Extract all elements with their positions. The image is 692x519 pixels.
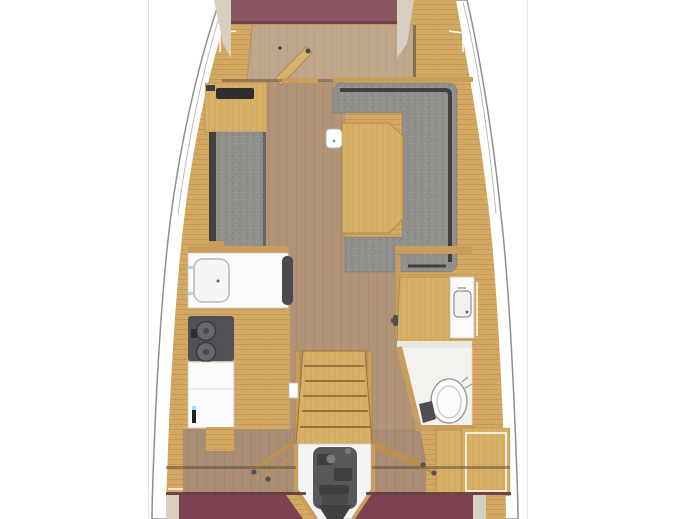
- galley-sink: [194, 259, 229, 302]
- forward-berth: [231, 0, 397, 23]
- forward-berth-seam: [231, 21, 397, 24]
- port-settee: [209, 132, 266, 249]
- berth-edge-starboard: [366, 492, 511, 495]
- vanity-sink: [454, 291, 471, 317]
- aft-seam-starboard: [372, 466, 510, 469]
- aft-panel-large: [462, 428, 510, 496]
- table-box-dot: [333, 140, 336, 143]
- dinette-table: [342, 123, 403, 233]
- starboard-aft-panels: [436, 428, 510, 496]
- head-door-handle: [393, 315, 398, 326]
- cyan-latch-top: [188, 266, 193, 269]
- engine-pulley-2: [345, 448, 351, 454]
- stove-knob: [191, 329, 197, 338]
- head-door: [397, 277, 450, 343]
- door-handle-stbd-2: [431, 470, 436, 475]
- burner-center-fwd: [203, 328, 209, 334]
- aft-berth-starboard: [355, 495, 473, 519]
- aft-berth-port: [179, 495, 303, 519]
- aft-pillow-port: [166, 495, 179, 519]
- companionway-stairs: [296, 351, 372, 444]
- galley-wood-notch: [206, 427, 234, 451]
- galley-counter-trim: [188, 246, 289, 253]
- floorplan-image: [0, 0, 692, 519]
- stair-side-latch: [289, 383, 298, 398]
- fridge-handle-tip: [192, 406, 196, 410]
- sink-drain: [217, 280, 220, 283]
- cabinet-vent-slot: [216, 88, 254, 99]
- head-mid-seam: [397, 341, 472, 347]
- engine-pulley-1: [327, 455, 336, 464]
- forward-door-handle: [306, 49, 311, 54]
- deck-plan-drawing: [0, 0, 692, 519]
- burner-center-aft: [203, 349, 209, 355]
- cyan-latch-bottom: [188, 292, 193, 295]
- port-settee-trim: [209, 132, 216, 249]
- aft-panel-small: [436, 430, 462, 496]
- engine-gearbox: [322, 494, 348, 506]
- dinette-back-sill: [333, 77, 473, 82]
- vanity-drain: [466, 311, 469, 314]
- door-handle-port-1: [251, 469, 256, 474]
- engine-part-2: [334, 468, 352, 481]
- galley-fiddle-rail: [282, 256, 293, 305]
- forward-cabin-floor: [247, 25, 415, 81]
- head-top-partition: [395, 246, 472, 254]
- port-settee-edge: [263, 132, 266, 249]
- forward-door-opening: [282, 78, 318, 83]
- aft-seam-port: [166, 466, 296, 469]
- cabinet-corner-fitting: [206, 85, 215, 91]
- forward-floor-seam: [413, 25, 416, 81]
- aft-pillow-starboard: [473, 495, 486, 519]
- deck-fitting-dot: [278, 46, 281, 49]
- berth-edge-port: [166, 492, 306, 495]
- table-white-box: [326, 129, 342, 148]
- door-handle-port-2: [265, 476, 270, 481]
